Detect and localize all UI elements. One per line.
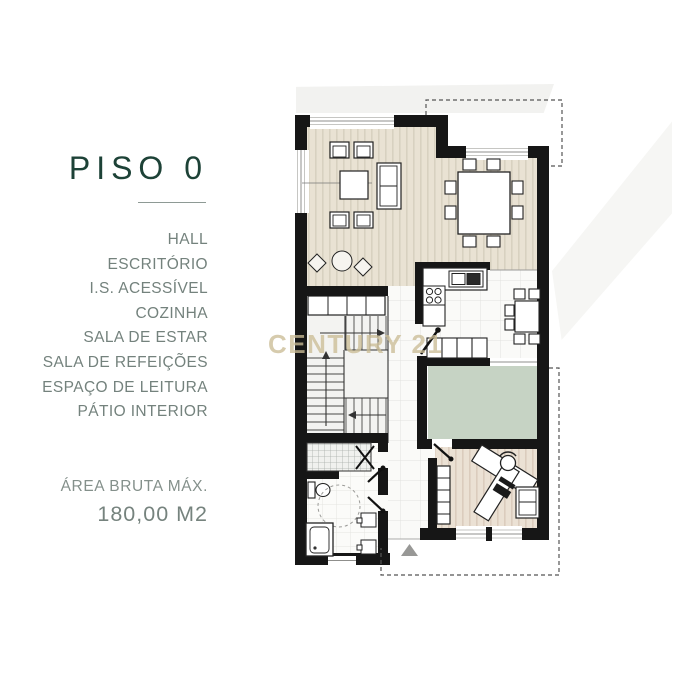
bookshelf (437, 466, 450, 524)
room-list-item: SALA DE REFEIÇÕES (30, 351, 208, 376)
wall-patio-left (417, 356, 427, 449)
cabinet (516, 487, 539, 518)
area-block: ÁREA BRUTA MÁX. 180,00 M2 (30, 478, 208, 527)
room-list-item: HALL (30, 228, 208, 253)
wall-below-stairs (295, 433, 388, 443)
dining-table (458, 172, 510, 234)
patio-floor (428, 366, 537, 439)
armchair (354, 212, 373, 228)
room-list-item: SALA DE ESTAR (30, 326, 208, 351)
kitchen-table (515, 301, 539, 332)
window-patio (490, 358, 537, 366)
floor-title: PISO 0 (30, 150, 208, 186)
entrance-arrow (401, 544, 418, 556)
title-divider (138, 202, 206, 203)
watermark: CENTURY 21 (268, 329, 443, 360)
kitchen-sink (449, 271, 483, 287)
window-bathroom-bottom (328, 556, 356, 565)
window-top-dining (466, 144, 528, 160)
sofa (377, 163, 401, 209)
bathtub (306, 523, 333, 556)
room-list-item: COZINHA (30, 302, 208, 327)
wall-bathroom-inner (307, 471, 339, 479)
wall-kitchen-left (415, 262, 423, 324)
armchair (354, 142, 373, 158)
room-list-item: ESCRITÓRIO (30, 253, 208, 278)
coffee-table (340, 171, 368, 199)
room-list-item: I.S. ACESSÍVEL (30, 277, 208, 302)
cooktop (423, 286, 445, 305)
room-list-item: ESPAÇO DE LEITURA (30, 376, 208, 401)
wall-below-living (295, 286, 388, 296)
page: PISO 0 HALL ESCRITÓRIO I.S. ACESSÍVEL CO… (0, 0, 687, 681)
wall-patio-bottom-a (417, 439, 432, 449)
armchair (330, 212, 349, 228)
window-top-living (310, 113, 394, 129)
toilet (308, 482, 330, 498)
entrance-hall-floor (388, 443, 435, 539)
armchair (330, 142, 349, 158)
info-panel: PISO 0 HALL ESCRITÓRIO I.S. ACESSÍVEL CO… (30, 0, 208, 425)
room-list-item: PÁTIO INTERIOR (30, 400, 208, 425)
wall-patio-bottom-b (452, 439, 549, 449)
room-list: HALL ESCRITÓRIO I.S. ACESSÍVEL COZINHA S… (30, 228, 208, 425)
area-value: 180,00 M2 (30, 502, 208, 527)
wall-office-left (428, 458, 437, 530)
window-left-living (293, 150, 309, 213)
window-office-bottom (456, 526, 522, 542)
shower-area (307, 443, 371, 471)
area-label: ÁREA BRUTA MÁX. (30, 478, 208, 496)
